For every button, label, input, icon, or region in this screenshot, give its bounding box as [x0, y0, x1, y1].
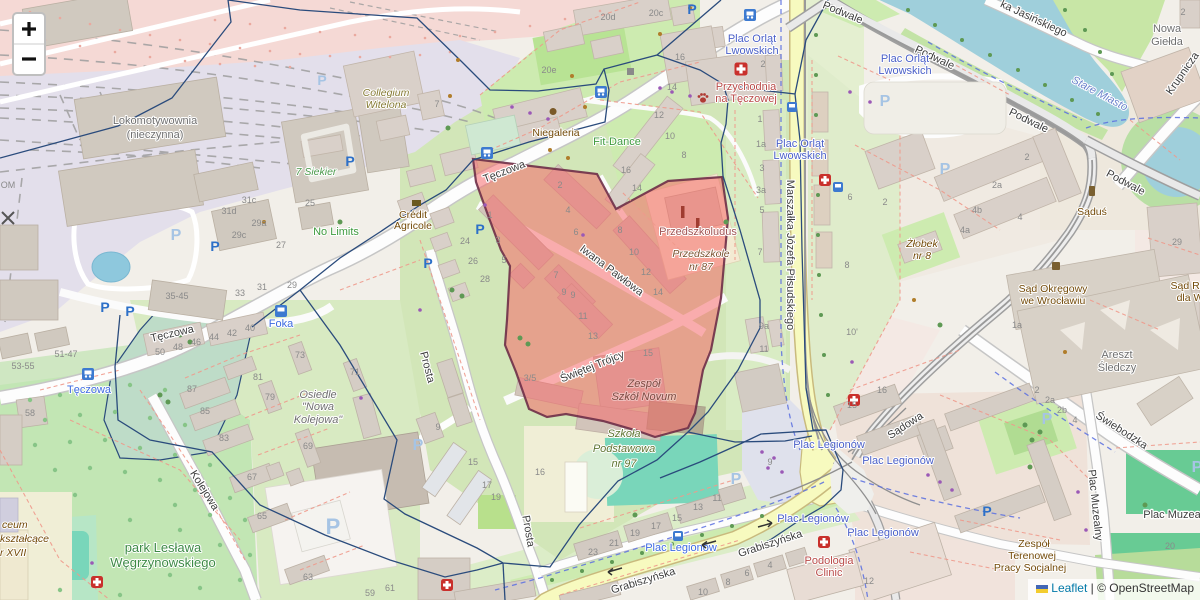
- svg-text:2: 2: [882, 197, 887, 207]
- svg-text:48: 48: [173, 342, 183, 352]
- svg-text:6: 6: [573, 227, 578, 237]
- svg-text:3: 3: [759, 163, 764, 173]
- svg-text:Lwowskich: Lwowskich: [725, 45, 778, 57]
- svg-text:Foka: Foka: [269, 318, 294, 330]
- svg-text:24: 24: [460, 236, 470, 246]
- svg-text:(nieczynna): (nieczynna): [127, 129, 184, 141]
- svg-text:2: 2: [1024, 152, 1029, 162]
- svg-text:r XVII: r XVII: [0, 547, 26, 559]
- svg-text:61: 61: [385, 583, 395, 593]
- svg-text:Plac Legionów: Plac Legionów: [793, 439, 865, 451]
- svg-text:11: 11: [578, 311, 587, 321]
- svg-text:16: 16: [877, 385, 887, 395]
- svg-text:Osiedle: Osiedle: [299, 389, 336, 401]
- svg-text:7 Siekier: 7 Siekier: [296, 166, 337, 178]
- svg-text:P: P: [326, 514, 341, 539]
- svg-text:9: 9: [570, 290, 575, 300]
- svg-text:17: 17: [651, 521, 661, 531]
- svg-text:9a: 9a: [759, 321, 769, 331]
- svg-text:Witelona: Witelona: [366, 99, 407, 111]
- svg-text:20c: 20c: [649, 8, 664, 18]
- svg-text:na Tęczowej: na Tęczowej: [715, 93, 777, 105]
- svg-text:P: P: [423, 255, 432, 271]
- svg-text:65: 65: [257, 511, 267, 521]
- svg-text:20d: 20d: [600, 12, 615, 22]
- svg-text:9: 9: [767, 457, 772, 467]
- svg-text:1a: 1a: [756, 139, 766, 149]
- svg-text:14: 14: [653, 287, 663, 297]
- svg-text:P: P: [880, 93, 891, 110]
- svg-text:Clinic: Clinic: [816, 567, 843, 579]
- svg-text:4: 4: [565, 205, 570, 215]
- svg-text:Sąd Okręgowy: Sąd Okręgowy: [1019, 283, 1089, 295]
- svg-text:7: 7: [434, 99, 439, 109]
- svg-text:Zespół: Zespół: [626, 378, 661, 390]
- svg-text:Collegium: Collegium: [363, 87, 410, 99]
- svg-text:Tęczowa: Tęczowa: [67, 384, 112, 396]
- svg-text:4: 4: [1072, 415, 1077, 425]
- svg-text:20: 20: [1165, 541, 1175, 551]
- svg-text:15: 15: [672, 513, 682, 523]
- svg-text:8: 8: [617, 225, 622, 235]
- svg-text:69: 69: [303, 441, 313, 451]
- svg-text:81: 81: [253, 372, 263, 382]
- svg-text:P: P: [345, 153, 354, 169]
- svg-text:29: 29: [287, 280, 297, 290]
- svg-text:58: 58: [25, 408, 35, 418]
- svg-text:79: 79: [265, 392, 275, 402]
- svg-text:1a: 1a: [1012, 320, 1022, 330]
- svg-text:OM: OM: [1, 180, 16, 190]
- svg-text:13: 13: [588, 331, 598, 341]
- svg-text:P: P: [171, 227, 182, 244]
- svg-text:29a: 29a: [251, 218, 266, 228]
- svg-text:P: P: [1192, 459, 1200, 476]
- svg-text:Plac Legionów: Plac Legionów: [847, 527, 919, 539]
- svg-text:6: 6: [744, 568, 749, 578]
- svg-text:16: 16: [535, 467, 545, 477]
- svg-text:11: 11: [759, 344, 768, 354]
- svg-text:Lwowskich: Lwowskich: [773, 150, 826, 162]
- svg-text:25: 25: [305, 198, 315, 208]
- svg-text:P: P: [210, 238, 219, 254]
- svg-text:83: 83: [219, 433, 229, 443]
- svg-text:P: P: [413, 437, 424, 454]
- svg-text:73: 73: [295, 350, 305, 360]
- svg-text:7: 7: [553, 270, 558, 280]
- svg-text:5: 5: [759, 205, 764, 215]
- svg-text:kształcące: kształcące: [0, 533, 49, 545]
- svg-text:10: 10: [665, 131, 675, 141]
- svg-text:71: 71: [350, 367, 360, 377]
- svg-text:31c: 31c: [242, 195, 257, 205]
- svg-text:P: P: [982, 503, 991, 519]
- svg-text:6: 6: [847, 192, 852, 202]
- svg-text:dla W: dla W: [1177, 292, 1200, 304]
- svg-text:3/5: 3/5: [524, 373, 537, 383]
- svg-text:2a: 2a: [992, 180, 1002, 190]
- svg-text:4a: 4a: [960, 225, 970, 235]
- svg-text:Fit-Dance: Fit-Dance: [593, 136, 641, 148]
- svg-text:10: 10: [698, 587, 708, 597]
- svg-text:P: P: [731, 471, 742, 488]
- svg-text:87: 87: [187, 384, 197, 394]
- svg-text:33: 33: [235, 288, 245, 298]
- svg-text:9: 9: [435, 422, 440, 432]
- svg-text:nr 97: nr 97: [611, 458, 637, 470]
- svg-text:16: 16: [621, 165, 631, 175]
- svg-text:Plac Muzea: Plac Muzea: [1143, 509, 1200, 521]
- svg-text:Plac Legionów: Plac Legionów: [777, 513, 849, 525]
- svg-text:14: 14: [632, 183, 642, 193]
- svg-text:59: 59: [365, 588, 375, 598]
- svg-text:12: 12: [654, 110, 664, 120]
- svg-text:2: 2: [557, 180, 562, 190]
- svg-text:29: 29: [1172, 237, 1182, 247]
- svg-text:Zespół: Zespół: [1018, 538, 1050, 550]
- svg-text:Plac Legionów: Plac Legionów: [862, 455, 934, 467]
- svg-text:63: 63: [303, 572, 313, 582]
- svg-text:16: 16: [675, 52, 685, 62]
- svg-text:13: 13: [693, 502, 703, 512]
- svg-text:Giełda: Giełda: [1151, 36, 1184, 48]
- svg-text:8: 8: [844, 260, 849, 270]
- svg-text:21: 21: [609, 538, 619, 548]
- svg-text:19: 19: [630, 528, 640, 538]
- svg-text:40: 40: [245, 323, 255, 333]
- svg-text:4: 4: [767, 560, 772, 570]
- svg-text:Podstawowa: Podstawowa: [593, 443, 655, 455]
- svg-text:12: 12: [864, 576, 874, 586]
- svg-text:park Lesława: park Lesława: [125, 540, 202, 555]
- svg-text:19: 19: [491, 492, 501, 502]
- svg-text:7: 7: [757, 247, 762, 257]
- svg-text:20e: 20e: [541, 65, 556, 75]
- svg-text:Pracy Socjalnej: Pracy Socjalnej: [994, 562, 1066, 574]
- svg-text:42: 42: [227, 328, 237, 338]
- svg-text:P: P: [1042, 411, 1053, 428]
- svg-text:P: P: [100, 299, 109, 315]
- svg-text:35-45: 35-45: [165, 291, 188, 301]
- svg-text:4b: 4b: [972, 205, 982, 215]
- svg-text:12: 12: [641, 267, 651, 277]
- svg-text:Areszt: Areszt: [1101, 349, 1132, 361]
- svg-text:2: 2: [1180, 7, 1185, 17]
- svg-text:Niegaleria: Niegaleria: [532, 127, 579, 139]
- svg-text:26: 26: [468, 256, 478, 266]
- svg-text:2: 2: [1034, 385, 1039, 395]
- svg-text:Przedszkoludus: Przedszkoludus: [659, 226, 737, 238]
- svg-text:17: 17: [482, 480, 492, 490]
- svg-text:4: 4: [1017, 212, 1022, 222]
- svg-text:Śledczy: Śledczy: [1098, 361, 1137, 374]
- svg-text:P: P: [475, 221, 484, 237]
- svg-text:51-47: 51-47: [54, 349, 77, 359]
- svg-text:2: 2: [760, 59, 765, 69]
- svg-text:5: 5: [501, 255, 506, 265]
- svg-text:46: 46: [191, 337, 201, 347]
- svg-text:8: 8: [725, 577, 730, 587]
- svg-text:10: 10: [629, 247, 639, 257]
- svg-text:15: 15: [468, 457, 478, 467]
- svg-text:Szkół Novum: Szkół Novum: [612, 391, 677, 403]
- svg-text:67: 67: [247, 472, 257, 482]
- svg-text:Terenowej: Terenowej: [1008, 550, 1056, 562]
- svg-text:"Nowa: "Nowa: [302, 401, 334, 413]
- svg-text:44: 44: [209, 332, 219, 342]
- svg-text:31d: 31d: [221, 206, 236, 216]
- svg-text:10': 10': [846, 327, 858, 337]
- svg-text:85: 85: [200, 406, 210, 416]
- svg-text:Plac Orląt: Plac Orląt: [776, 138, 824, 150]
- svg-text:P: P: [125, 303, 134, 319]
- svg-text:Szkoła: Szkoła: [607, 428, 640, 440]
- svg-text:1: 1: [487, 210, 492, 220]
- svg-text:31: 31: [257, 282, 267, 292]
- svg-text:Sąduś: Sąduś: [1077, 206, 1107, 218]
- svg-text:50: 50: [155, 347, 165, 357]
- svg-text:Lokomotywownia: Lokomotywownia: [113, 115, 198, 127]
- svg-text:9: 9: [561, 287, 566, 297]
- svg-text:23: 23: [588, 547, 598, 557]
- svg-text:P: P: [317, 72, 326, 88]
- svg-text:2b: 2b: [1057, 405, 1067, 415]
- svg-text:14: 14: [667, 82, 677, 92]
- svg-text:Węgrzynowskiego: Węgrzynowskiego: [110, 555, 216, 570]
- svg-text:15: 15: [643, 348, 653, 358]
- svg-text:Agricole: Agricole: [394, 220, 432, 232]
- svg-text:Żłobek: Żłobek: [905, 238, 938, 250]
- svg-text:Kolejowa": Kolejowa": [294, 414, 344, 426]
- svg-text:P: P: [940, 161, 951, 178]
- svg-text:29c: 29c: [232, 230, 247, 240]
- svg-text:Marszałka Józefa Piłsudskiego: Marszałka Józefa Piłsudskiego: [784, 180, 796, 330]
- svg-text:No Limits: No Limits: [313, 226, 359, 238]
- svg-text:28: 28: [480, 274, 490, 284]
- svg-text:we Wrocławiu: we Wrocławiu: [1020, 295, 1086, 307]
- svg-text:15: 15: [847, 400, 857, 410]
- svg-text:8: 8: [681, 150, 686, 160]
- svg-text:P: P: [687, 1, 696, 17]
- svg-text:Nowa: Nowa: [1153, 23, 1182, 35]
- svg-text:nr 87: nr 87: [689, 261, 714, 273]
- svg-text:Plac Orląt: Plac Orląt: [728, 33, 776, 45]
- svg-text:2a: 2a: [1045, 395, 1055, 405]
- svg-text:1: 1: [757, 114, 762, 124]
- svg-text:3a: 3a: [756, 185, 766, 195]
- svg-text:Podologia: Podologia: [805, 555, 855, 567]
- svg-text:Plac Orląt: Plac Orląt: [881, 53, 929, 65]
- svg-text:11: 11: [712, 493, 721, 503]
- svg-text:ceum: ceum: [2, 519, 28, 531]
- svg-text:3: 3: [495, 235, 500, 245]
- svg-text:27: 27: [276, 240, 286, 250]
- svg-text:Przychodnia: Przychodnia: [716, 81, 777, 93]
- svg-text:Przedszkole: Przedszkole: [672, 248, 729, 260]
- svg-text:nr 8: nr 8: [913, 250, 931, 262]
- svg-text:Sąd Re: Sąd Re: [1170, 280, 1200, 292]
- svg-text:Lwowskich: Lwowskich: [878, 65, 931, 77]
- svg-text:53-55: 53-55: [11, 361, 34, 371]
